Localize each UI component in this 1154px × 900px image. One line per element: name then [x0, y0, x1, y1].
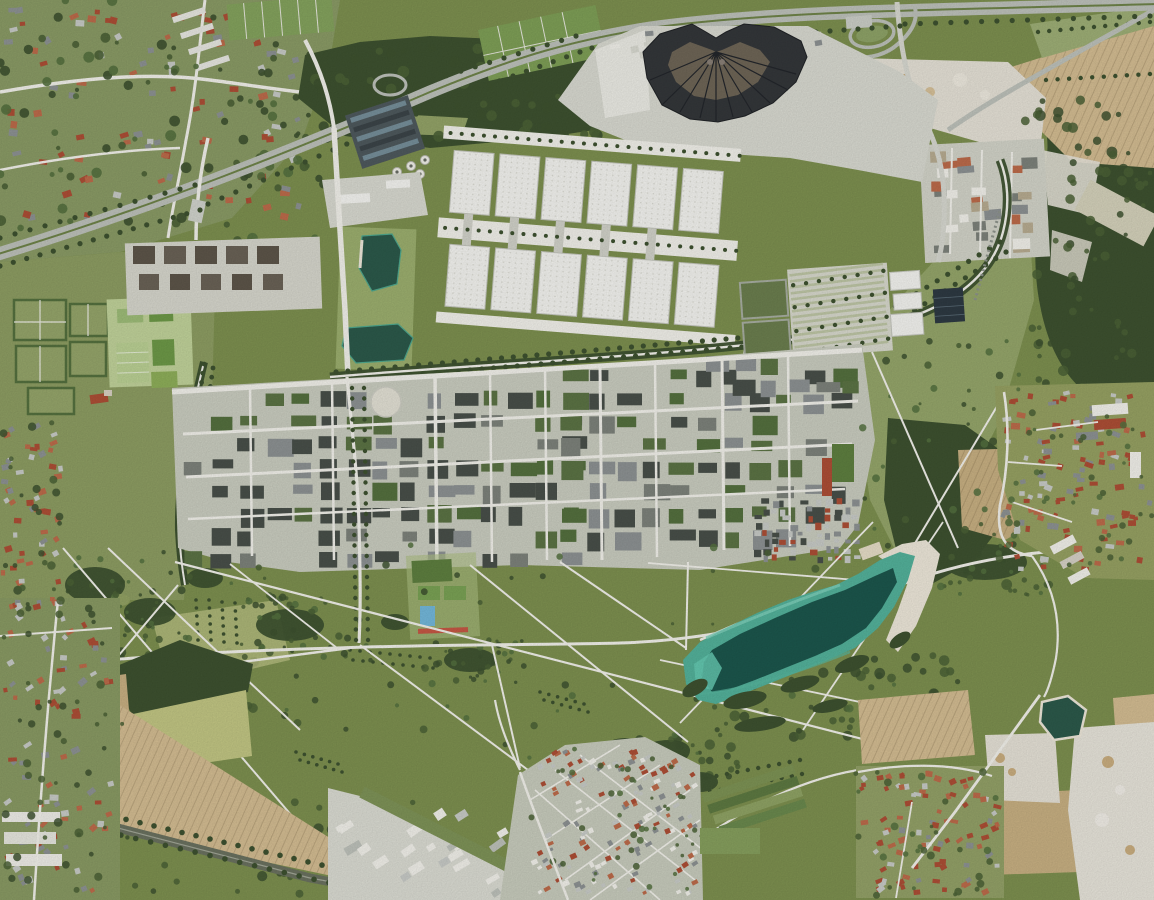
aerial-photo — [0, 0, 1154, 900]
aerial-photo-stage — [0, 0, 1154, 900]
photo-grain-overlay — [0, 0, 1154, 900]
